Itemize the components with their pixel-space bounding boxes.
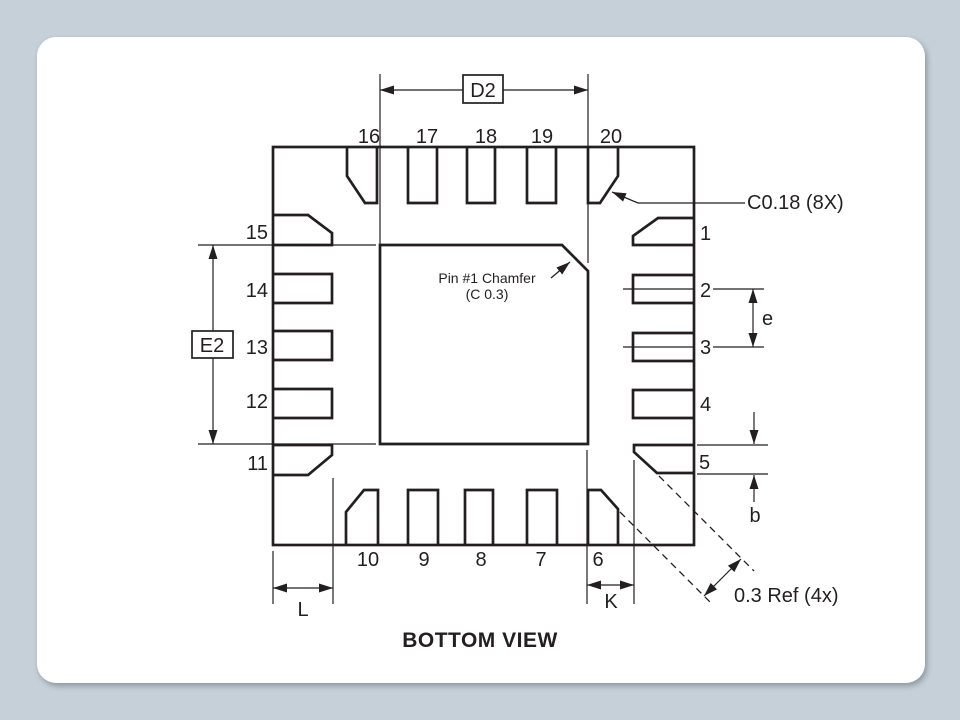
pin-10-label: 10 bbox=[357, 549, 379, 571]
dim-e-label: e bbox=[762, 308, 773, 330]
pin-15-label: 15 bbox=[246, 222, 268, 244]
ref-dashed-line-upper bbox=[659, 476, 754, 571]
pin-1-label: 1 bbox=[700, 223, 711, 245]
pin-4-label: 4 bbox=[700, 394, 711, 416]
package-outline bbox=[273, 147, 694, 545]
pin1-chamfer-note-line1: Pin #1 Chamfer bbox=[438, 270, 536, 286]
chamfer-leader-arrow bbox=[612, 192, 638, 203]
pin-7-label: 7 bbox=[535, 549, 546, 571]
corner-chamfer-note: C0.18 (8X) bbox=[747, 192, 844, 214]
dim-b-label: b bbox=[749, 505, 760, 527]
dim-k-label: K bbox=[604, 591, 618, 613]
pin-12-pad bbox=[273, 389, 332, 418]
page-background: 16 17 18 19 20 1 2 3 4 5 10 9 8 7 6 15 1… bbox=[0, 0, 960, 720]
pin-15-pad bbox=[273, 215, 332, 245]
pin-10-pad bbox=[346, 490, 378, 545]
pin1-chamfer-note-line2: (C 0.3) bbox=[466, 286, 509, 302]
pin-19-label: 19 bbox=[531, 126, 553, 148]
pin-7-pad bbox=[527, 490, 557, 545]
pin-11-label: 11 bbox=[247, 453, 268, 475]
pin-1-pad bbox=[633, 218, 694, 245]
pin-3-label: 3 bbox=[700, 337, 711, 359]
pin-17-pad bbox=[408, 147, 437, 203]
qfn-package-diagram: 16 17 18 19 20 1 2 3 4 5 10 9 8 7 6 15 1… bbox=[0, 0, 960, 720]
pin-20-pad bbox=[588, 147, 618, 203]
pin-9-label: 9 bbox=[418, 549, 429, 571]
dim-d2-label: D2 bbox=[470, 80, 496, 102]
pin-13-label: 13 bbox=[246, 337, 268, 359]
dim-e2-label: E2 bbox=[200, 335, 224, 357]
diagram-text: 16 17 18 19 20 1 2 3 4 5 10 9 8 7 6 15 1… bbox=[200, 80, 844, 652]
pin-18-pad bbox=[467, 147, 495, 203]
pin-5-label: 5 bbox=[699, 452, 710, 474]
figure-title: BOTTOM VIEW bbox=[402, 629, 558, 652]
corner-ref-note: 0.3 Ref (4x) bbox=[734, 585, 838, 607]
pin-6-label: 6 bbox=[592, 549, 603, 571]
pin-20-label: 20 bbox=[600, 126, 622, 148]
pin-6-pad bbox=[588, 490, 618, 545]
package-linework bbox=[273, 147, 694, 545]
pin1-chamfer-leader-arrow bbox=[551, 262, 570, 278]
pin-16-label: 16 bbox=[358, 126, 380, 148]
pin-4-pad bbox=[633, 390, 694, 418]
pin-18-label: 18 bbox=[475, 126, 497, 148]
pin-8-pad bbox=[465, 490, 493, 545]
pin-8-label: 8 bbox=[475, 549, 486, 571]
pin-14-label: 14 bbox=[246, 280, 268, 302]
pin-5-pad bbox=[634, 445, 694, 473]
pin-17-label: 17 bbox=[416, 126, 438, 148]
dimension-linework bbox=[192, 74, 768, 605]
pin-11-pad bbox=[273, 445, 332, 475]
pin-13-pad bbox=[273, 331, 332, 360]
pin-14-pad bbox=[273, 274, 332, 303]
pin-16-pad bbox=[347, 147, 377, 203]
pin-19-pad bbox=[527, 147, 556, 203]
pin-12-label: 12 bbox=[246, 391, 268, 413]
dim-l-label: L bbox=[297, 599, 308, 621]
pin-2-label: 2 bbox=[700, 280, 711, 302]
pin-9-pad bbox=[408, 490, 438, 545]
